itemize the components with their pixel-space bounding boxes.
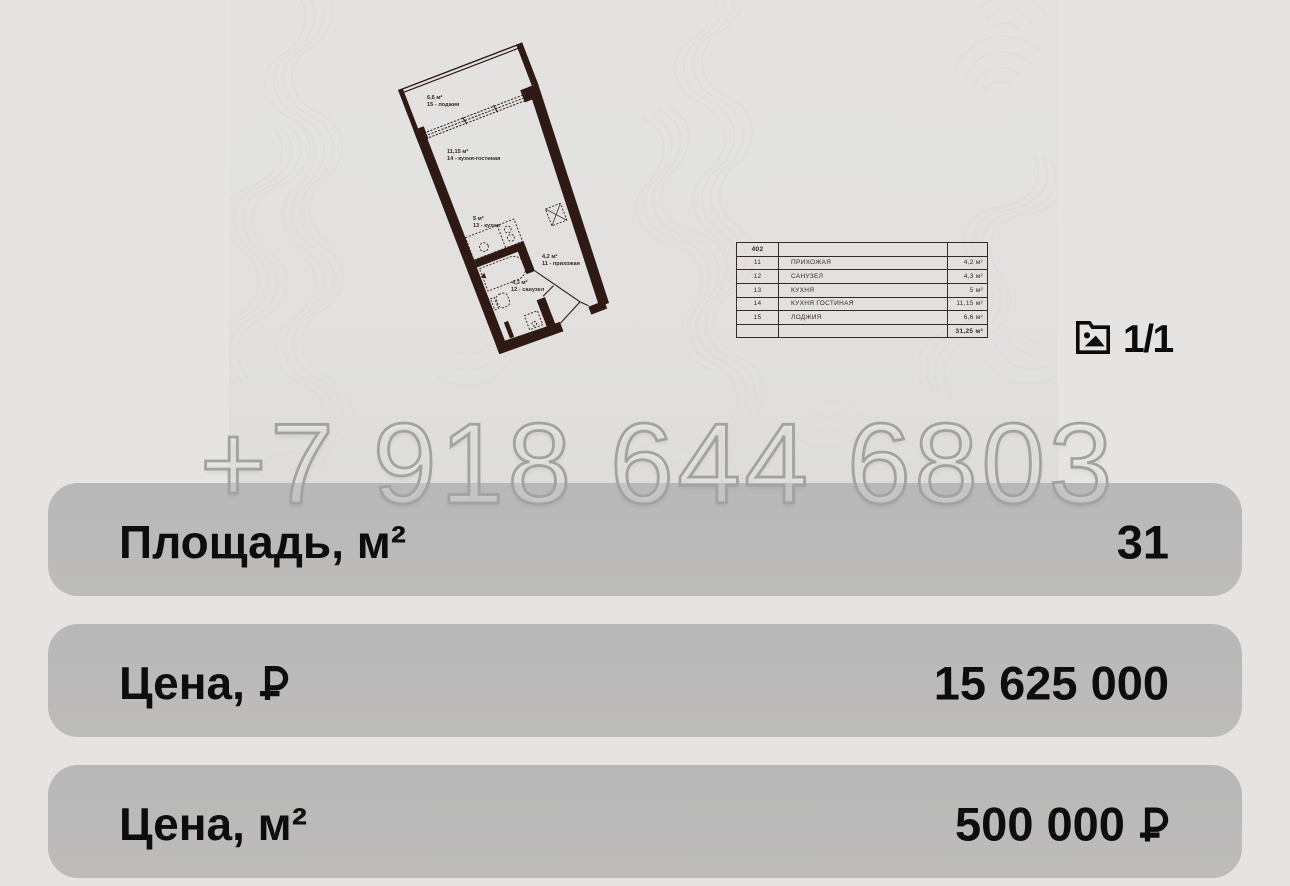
svg-text:14 - кухня-гостиная: 14 - кухня-гостиная (447, 156, 500, 162)
svg-text:5 м²: 5 м² (473, 215, 484, 222)
svg-text:15 - лоджия: 15 - лоджия (427, 102, 459, 108)
svg-text:12 - санузел: 12 - санузел (511, 287, 545, 293)
svg-text:4,3 м²: 4,3 м² (512, 279, 527, 286)
svg-text:11,15 м²: 11,15 м² (447, 148, 468, 155)
svg-text:11 - прихожая: 11 - прихожая (542, 261, 580, 267)
svg-text:6,6 м²: 6,6 м² (427, 94, 442, 101)
svg-text:13 - кухня: 13 - кухня (473, 223, 500, 229)
svg-text:4,2 м²: 4,2 м² (542, 253, 557, 260)
